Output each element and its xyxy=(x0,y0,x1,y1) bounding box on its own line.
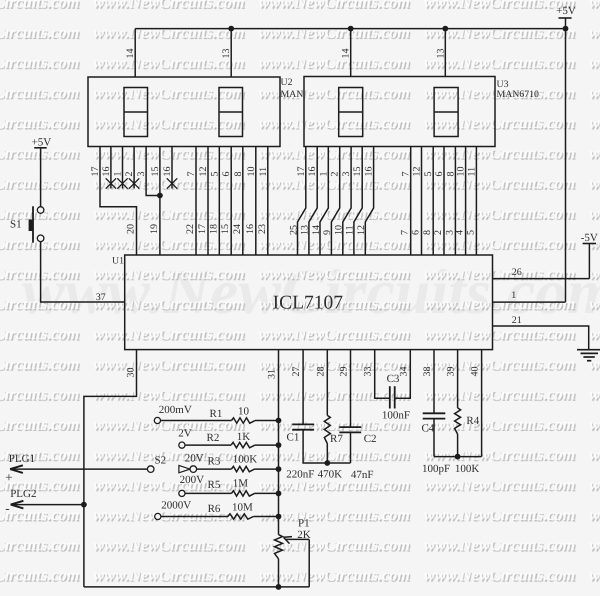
svg-text:100pF: 100pF xyxy=(422,463,450,475)
svg-text:12: 12 xyxy=(412,167,423,177)
svg-text:10: 10 xyxy=(238,406,250,418)
svg-text:10: 10 xyxy=(456,167,467,177)
svg-text:R1: R1 xyxy=(210,408,223,420)
svg-text:39: 39 xyxy=(446,367,457,377)
svg-text:U2: U2 xyxy=(281,77,293,88)
svg-text:25: 25 xyxy=(288,225,299,235)
svg-text:+5V: +5V xyxy=(32,137,52,149)
svg-text:-: - xyxy=(5,501,9,516)
svg-text:16: 16 xyxy=(307,167,318,177)
svg-text:20V: 20V xyxy=(185,453,204,465)
svg-text:8: 8 xyxy=(233,172,244,177)
svg-text:14: 14 xyxy=(125,49,136,59)
svg-text:C2: C2 xyxy=(364,433,377,445)
svg-text:+: + xyxy=(5,470,12,485)
svg-text:R7: R7 xyxy=(330,433,343,445)
svg-text:17: 17 xyxy=(296,167,307,177)
svg-text:470K: 470K xyxy=(318,468,343,480)
svg-text:1K: 1K xyxy=(237,431,251,443)
svg-text:13: 13 xyxy=(300,225,311,235)
svg-text:7: 7 xyxy=(186,172,197,177)
svg-text:ICL7107: ICL7107 xyxy=(273,293,344,314)
svg-text:24: 24 xyxy=(232,224,243,234)
svg-text:13: 13 xyxy=(435,49,446,59)
svg-text:13: 13 xyxy=(221,49,232,59)
svg-text:1: 1 xyxy=(318,172,329,177)
svg-text:9: 9 xyxy=(322,230,333,235)
svg-text:2000V: 2000V xyxy=(161,499,191,511)
svg-text:15: 15 xyxy=(352,167,363,177)
svg-text:28: 28 xyxy=(315,367,326,377)
svg-text:PLG2: PLG2 xyxy=(10,488,36,500)
svg-text:38: 38 xyxy=(422,367,433,377)
svg-text:10M: 10M xyxy=(232,502,253,514)
svg-text:R4: R4 xyxy=(466,415,479,427)
svg-text:16: 16 xyxy=(245,224,256,234)
svg-text:14: 14 xyxy=(341,49,352,59)
svg-text:200mV: 200mV xyxy=(159,404,192,416)
svg-text:P1: P1 xyxy=(298,517,310,529)
svg-text:26: 26 xyxy=(512,267,522,278)
svg-text:MAN6710: MAN6710 xyxy=(497,89,540,100)
svg-text:100K: 100K xyxy=(455,463,480,475)
svg-text:8: 8 xyxy=(422,230,433,235)
svg-text:-5V: -5V xyxy=(581,232,598,244)
svg-text:R2: R2 xyxy=(207,432,220,444)
svg-text:10: 10 xyxy=(246,167,257,177)
svg-text:31: 31 xyxy=(267,369,278,379)
svg-text:14: 14 xyxy=(311,225,322,235)
svg-text:4: 4 xyxy=(455,230,466,235)
svg-text:11: 11 xyxy=(466,167,477,177)
svg-text:6: 6 xyxy=(221,172,232,177)
svg-text:3: 3 xyxy=(341,172,352,177)
svg-text:100K: 100K xyxy=(233,453,258,465)
svg-text:5: 5 xyxy=(423,172,434,177)
svg-text:23: 23 xyxy=(257,224,268,234)
svg-text:29: 29 xyxy=(339,367,350,377)
svg-text:11: 11 xyxy=(258,167,269,177)
svg-text:18: 18 xyxy=(208,224,219,234)
svg-text:16: 16 xyxy=(364,167,375,177)
svg-text:200V: 200V xyxy=(180,474,205,486)
svg-text:100nF: 100nF xyxy=(382,409,410,421)
svg-text:11: 11 xyxy=(345,225,356,235)
svg-text:1M: 1M xyxy=(233,477,249,489)
svg-text:7: 7 xyxy=(400,230,411,235)
svg-text:R5: R5 xyxy=(208,479,221,491)
svg-text:S1: S1 xyxy=(10,218,22,230)
svg-text:C4: C4 xyxy=(422,423,435,435)
svg-text:30: 30 xyxy=(126,368,137,378)
svg-text:PLG1: PLG1 xyxy=(9,453,35,465)
svg-text:MAN: MAN xyxy=(281,89,304,100)
svg-text:34: 34 xyxy=(398,367,409,377)
svg-text:R3: R3 xyxy=(208,456,221,468)
svg-text:S2: S2 xyxy=(155,455,167,467)
svg-text:21: 21 xyxy=(512,315,522,326)
svg-text:22: 22 xyxy=(185,224,196,234)
svg-text:33: 33 xyxy=(363,367,374,377)
svg-text:5: 5 xyxy=(209,172,220,177)
svg-text:15: 15 xyxy=(220,224,231,234)
svg-text:1: 1 xyxy=(511,290,516,301)
svg-text:2: 2 xyxy=(330,172,341,177)
svg-text:220nF: 220nF xyxy=(286,468,314,480)
svg-text:C1: C1 xyxy=(287,432,300,444)
svg-text:5: 5 xyxy=(465,230,476,235)
svg-text:R6: R6 xyxy=(208,503,221,515)
svg-text:U1: U1 xyxy=(112,255,124,266)
svg-text:37: 37 xyxy=(96,292,106,303)
svg-text:12: 12 xyxy=(356,225,367,235)
svg-text:U3: U3 xyxy=(497,79,509,90)
svg-text:27: 27 xyxy=(291,367,302,377)
svg-text:2V: 2V xyxy=(178,428,192,440)
svg-text:6: 6 xyxy=(411,230,422,235)
svg-text:40: 40 xyxy=(470,367,481,377)
svg-text:17: 17 xyxy=(197,224,208,234)
svg-text:19: 19 xyxy=(149,224,160,234)
svg-text:20: 20 xyxy=(126,224,137,234)
svg-text:12: 12 xyxy=(198,167,209,177)
svg-text:10: 10 xyxy=(334,225,345,235)
svg-text:7: 7 xyxy=(401,172,412,177)
svg-text:6: 6 xyxy=(434,172,445,177)
svg-text:2: 2 xyxy=(433,230,444,235)
svg-text:47nF: 47nF xyxy=(351,469,374,481)
svg-text:+5V: +5V xyxy=(556,5,576,17)
